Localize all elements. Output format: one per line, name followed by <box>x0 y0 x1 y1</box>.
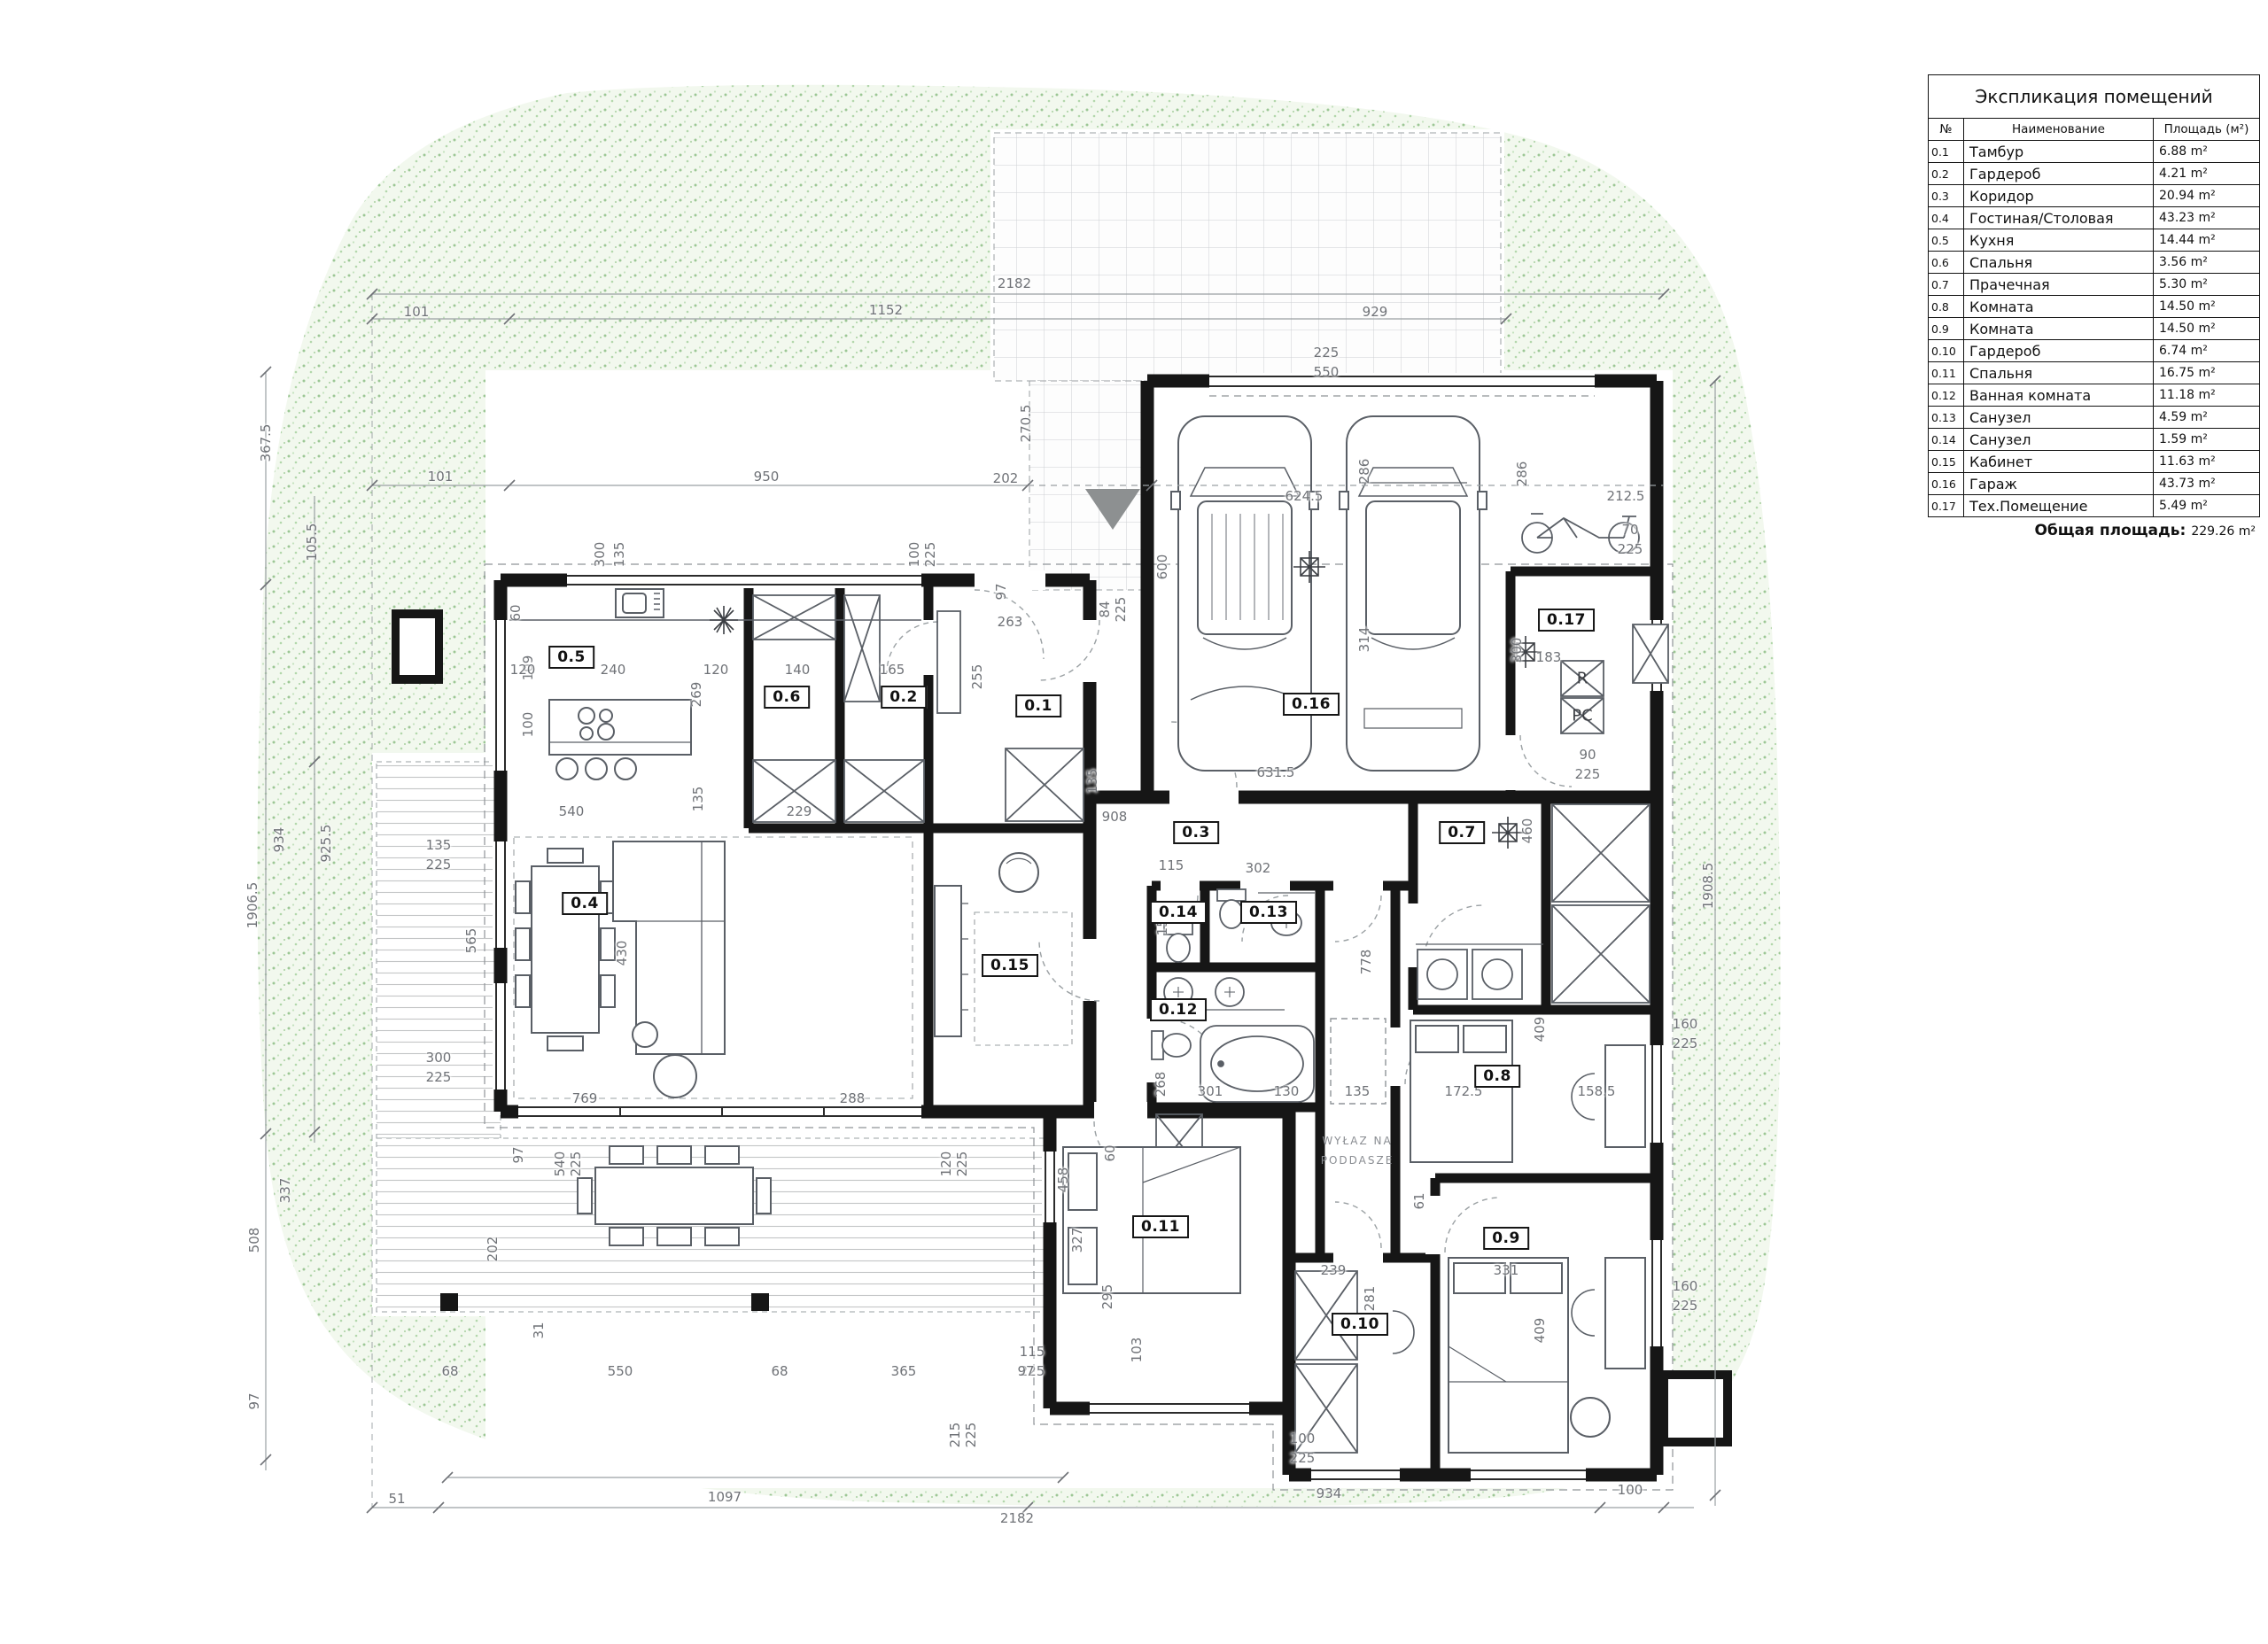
room-schedule-cell: Тамбур <box>1964 141 2154 163</box>
dimension-label: 240 <box>601 662 626 678</box>
room-schedule-cell: Санузел <box>1964 407 2154 429</box>
dimension-label: 263 <box>998 614 1023 630</box>
dimension-label: 295 <box>1099 1284 1115 1310</box>
room-schedule-cell: Тех.Помещение <box>1964 495 2154 517</box>
dimension-label: 160 <box>1673 1016 1698 1032</box>
dimension-label: 225 <box>1314 345 1340 361</box>
dimension-label: 225 <box>1673 1035 1698 1051</box>
room-tag-0.17: 0.17 <box>1538 609 1595 632</box>
room-schedule: Экспликация помещений № Наименование Пло… <box>1928 74 2259 539</box>
room-schedule-cell: 0.11 <box>1929 362 1964 384</box>
dimension-label: 540 <box>552 1152 568 1177</box>
dimension-label: 101 <box>428 469 454 485</box>
car-1 <box>1171 416 1318 771</box>
dimension-label: 565 <box>463 928 479 954</box>
dimension-label: 68 <box>771 1363 788 1379</box>
room-schedule-cell: Гараж <box>1964 473 2154 495</box>
dimension-label: 225 <box>426 857 452 872</box>
dimension-label: 458 <box>1055 1167 1071 1193</box>
dimension-label: 90 <box>1579 747 1596 763</box>
dimension-label: 929 <box>1363 304 1388 320</box>
dimension-label: 769 <box>572 1090 598 1106</box>
room-schedule-cell: 14.50 m² <box>2154 296 2260 318</box>
room-schedule-row: 0.10Гардероб6.74 m² <box>1929 340 2260 362</box>
dimension-label: 225 <box>568 1152 584 1177</box>
room-schedule-cell: 0.6 <box>1929 252 1964 274</box>
dimension-label: 135 <box>611 542 627 568</box>
dimension-label: 624.5 <box>1285 488 1324 504</box>
floor-plan-sheet: 21821011152929225550101950202270.5367.51… <box>0 0 2268 1644</box>
annotation: WYŁAZ NA <box>1322 1135 1392 1147</box>
dimension-label: 337 <box>277 1178 293 1204</box>
room-schedule-cell: 5.30 m² <box>2154 274 2260 296</box>
room-schedule-cell: Кабинет <box>1964 451 2154 473</box>
dimension-label: 135 <box>426 837 452 853</box>
dimension-label: 286 <box>1514 461 1530 487</box>
dimension-label: 135 <box>1345 1083 1371 1099</box>
room-schedule-cell: 1.59 m² <box>2154 429 2260 451</box>
room-schedule-cell: 16.75 m² <box>2154 362 2260 384</box>
room-schedule-cell: 0.9 <box>1929 318 1964 340</box>
room-schedule-row: 0.3Коридор20.94 m² <box>1929 185 2260 207</box>
dimension-label: 269 <box>688 682 704 708</box>
dimension-label: 158.5 <box>1578 1083 1616 1099</box>
dimension-label: 268 <box>1153 1072 1169 1097</box>
dimension-label: 540 <box>559 803 585 819</box>
dimension-label: 2182 <box>1000 1510 1034 1526</box>
dimension-label: 100 <box>906 542 922 568</box>
dimension-label: 70 <box>1621 522 1638 538</box>
room-schedule-cell: Коридор <box>1964 185 2154 207</box>
dimension-label: 950 <box>754 469 780 485</box>
room-schedule-cell: 0.17 <box>1929 495 1964 517</box>
dimension-label: 300 <box>1509 638 1525 663</box>
dimension-label: 120 <box>938 1152 954 1177</box>
dimension-label: 229 <box>787 803 812 819</box>
room-schedule-cell: Гардероб <box>1964 340 2154 362</box>
dimension-label: 202 <box>993 470 1019 486</box>
room-schedule-cell: 0.8 <box>1929 296 1964 318</box>
dimension-label: 255 <box>969 664 985 690</box>
dimension-label: 300 <box>426 1050 452 1066</box>
dimension-label: 61 <box>1411 1192 1427 1209</box>
dimension-label: 550 <box>1314 364 1340 380</box>
room-schedule-cell: 14.44 m² <box>2154 229 2260 252</box>
room-schedule-cell: 3.56 m² <box>2154 252 2260 274</box>
annotation: R <box>1577 670 1588 688</box>
col-header-area: Площадь (м²) <box>2154 119 2260 141</box>
dimension-label: 460 <box>1519 818 1535 844</box>
room-schedule-cell: 0.3 <box>1929 185 1964 207</box>
total-area-value: 229.26 m² <box>2191 524 2256 539</box>
dimension-label: 51 <box>388 1491 405 1507</box>
dimension-label: 97 <box>510 1146 526 1163</box>
dimension-label: 2182 <box>998 275 1031 291</box>
dimension-label: 84 <box>1097 601 1113 617</box>
room-schedule-cell: Спальня <box>1964 362 2154 384</box>
dimension-label: 225 <box>1113 597 1129 623</box>
dimension-label: 288 <box>840 1090 866 1106</box>
room-tag-0.15: 0.15 <box>982 954 1038 977</box>
dimension-label: 60 <box>1102 1144 1118 1161</box>
dimension-label: 135 <box>1084 769 1100 795</box>
room-schedule-cell: Ванная комната <box>1964 384 2154 407</box>
room-schedule-row: 0.5Кухня14.44 m² <box>1929 229 2260 252</box>
room-schedule-row: 0.15Кабинет11.63 m² <box>1929 451 2260 473</box>
room-schedule-row: 0.14Санузел1.59 m² <box>1929 429 2260 451</box>
dimension-label: 135 <box>690 787 706 812</box>
dimension-label: 140 <box>785 662 811 678</box>
dimension-label: 631.5 <box>1257 764 1295 780</box>
room-schedule-cell: Кухня <box>1964 229 2154 252</box>
dimension-label: 1097 <box>708 1489 742 1505</box>
dimension-label: 239 <box>1321 1262 1347 1278</box>
room-tag-0.2: 0.2 <box>881 686 927 709</box>
dimension-label: 225 <box>1575 766 1601 782</box>
dimension-label: 68 <box>441 1363 458 1379</box>
col-header-name: Наименование <box>1964 119 2154 141</box>
room-tag-0.9: 0.9 <box>1483 1227 1529 1250</box>
dimension-label: 225 <box>1618 541 1643 557</box>
room-schedule-cell: 5.49 m² <box>2154 495 2260 517</box>
room-schedule-cell: 0.13 <box>1929 407 1964 429</box>
room-schedule-cell: Комната <box>1964 318 2154 340</box>
dimension-label: 215 <box>947 1423 963 1448</box>
room-schedule-cell: 20.94 m² <box>2154 185 2260 207</box>
dimension-label: 97 <box>993 583 1009 600</box>
room-schedule-title: Экспликация помещений <box>1929 75 2260 119</box>
dimension-label: 600 <box>1154 554 1170 580</box>
dimension-label: 1906.5 <box>245 882 260 929</box>
dimension-label: 550 <box>608 1363 633 1379</box>
room-schedule-cell: 6.74 m² <box>2154 340 2260 362</box>
total-area: Общая площадь: 229.26 m² <box>1928 522 2259 539</box>
dimension-label: 225 <box>922 542 938 568</box>
room-tag-0.12: 0.12 <box>1150 998 1207 1021</box>
dimension-label: 286 <box>1356 459 1372 485</box>
room-schedule-cell: 11.18 m² <box>2154 384 2260 407</box>
room-schedule-cell: 0.7 <box>1929 274 1964 296</box>
room-schedule-row: 0.6Спальня3.56 m² <box>1929 252 2260 274</box>
dimension-label: 302 <box>1246 860 1271 876</box>
room-schedule-row: 0.11Спальня16.75 m² <box>1929 362 2260 384</box>
room-schedule-cell: 43.23 m² <box>2154 207 2260 229</box>
col-header-num: № <box>1929 119 1964 141</box>
room-tag-0.3: 0.3 <box>1173 821 1219 844</box>
dimension-label: 31 <box>531 1322 547 1338</box>
dimension-label: 100 <box>520 712 536 738</box>
room-schedule-table: Экспликация помещений № Наименование Пло… <box>1928 74 2260 517</box>
dimension-label: 300 <box>592 542 608 568</box>
total-area-label: Общая площадь: <box>2034 522 2186 539</box>
dimension-label: 101 <box>404 304 430 320</box>
room-tag-0.6: 0.6 <box>764 686 810 709</box>
room-tag-0.5: 0.5 <box>548 646 594 669</box>
room-schedule-cell: Спальня <box>1964 252 2154 274</box>
room-schedule-cell: 0.10 <box>1929 340 1964 362</box>
room-schedule-cell: 0.12 <box>1929 384 1964 407</box>
dimension-label: 202 <box>485 1237 501 1262</box>
dimension-label: 934 <box>1317 1485 1342 1501</box>
dimension-label: 367.5 <box>258 424 274 462</box>
dimension-label: 327 <box>1069 1228 1085 1253</box>
room-schedule-cell: 43.73 m² <box>2154 473 2260 495</box>
dimension-label: 97 <box>246 1392 262 1409</box>
dimension-label: 130 <box>1274 1083 1300 1099</box>
dimension-label: 225 <box>426 1069 452 1085</box>
dimension-label: 105.5 <box>304 523 320 562</box>
dimension-label: 115 <box>1020 1344 1045 1360</box>
room-schedule-row: 0.8Комната14.50 m² <box>1929 296 2260 318</box>
dimension-label: 314 <box>1356 627 1372 653</box>
dimension-label: 60 <box>508 604 524 621</box>
room-schedule-cell: 0.2 <box>1929 163 1964 185</box>
dimension-label: 225 <box>1673 1298 1698 1314</box>
dimension-label: 165 <box>880 662 905 678</box>
room-schedule-row: 0.16Гараж43.73 m² <box>1929 473 2260 495</box>
dimension-label: 409 <box>1532 1318 1548 1344</box>
room-schedule-header: № Наименование Площадь (м²) <box>1929 119 2260 141</box>
dimension-label: 430 <box>614 941 630 966</box>
room-schedule-cell: 0.5 <box>1929 229 1964 252</box>
dimension-label: 120 <box>510 662 536 678</box>
dimension-label: 934 <box>271 827 287 853</box>
room-tag-0.4: 0.4 <box>562 892 608 915</box>
room-schedule-cell: Комната <box>1964 296 2154 318</box>
annotation: PODDASZE <box>1321 1154 1394 1167</box>
room-schedule-row: 0.17Тех.Помещение5.49 m² <box>1929 495 2260 517</box>
dimension-label: 183 <box>1536 649 1562 665</box>
room-schedule-cell: 4.59 m² <box>2154 407 2260 429</box>
room-schedule-row: 0.12Ванная комната11.18 m² <box>1929 384 2260 407</box>
dimension-label: 160 <box>1673 1278 1698 1294</box>
room-tag-0.10: 0.10 <box>1332 1313 1388 1336</box>
dimension-label: 100 <box>1290 1431 1316 1446</box>
room-schedule-cell: 0.16 <box>1929 473 1964 495</box>
dimension-label: 212.5 <box>1607 488 1645 504</box>
room-tag-0.1: 0.1 <box>1015 694 1061 717</box>
dimension-label: 115 <box>1159 857 1184 873</box>
room-schedule-row: 0.13Санузел4.59 m² <box>1929 407 2260 429</box>
room-tag-0.11: 0.11 <box>1132 1215 1189 1238</box>
room-tag-0.16: 0.16 <box>1283 693 1340 716</box>
dimension-label: 508 <box>246 1228 262 1253</box>
dimension-label: 301 <box>1198 1083 1223 1099</box>
dimension-label: 331 <box>1494 1262 1519 1278</box>
dimension-label: 270.5 <box>1018 405 1034 443</box>
dimension-label: 409 <box>1532 1017 1548 1043</box>
room-tag-0.7: 0.7 <box>1439 821 1485 844</box>
dimension-label: 225 <box>954 1152 970 1177</box>
room-schedule-cell: 0.14 <box>1929 429 1964 451</box>
dimension-label: 1152 <box>869 302 903 318</box>
room-schedule-row: 0.1Тамбур6.88 m² <box>1929 141 2260 163</box>
room-schedule-cell: 11.63 m² <box>2154 451 2260 473</box>
dimension-label: 120 <box>703 662 729 678</box>
room-schedule-cell: 0.15 <box>1929 451 1964 473</box>
dimension-label: 100 <box>1618 1482 1643 1498</box>
room-schedule-cell: Гардероб <box>1964 163 2154 185</box>
room-tag-0.14: 0.14 <box>1150 901 1207 924</box>
room-schedule-cell: 4.21 m² <box>2154 163 2260 185</box>
dimension-label: 1908.5 <box>1700 863 1716 910</box>
room-schedule-cell: 0.1 <box>1929 141 1964 163</box>
room-tag-0.8: 0.8 <box>1474 1065 1520 1088</box>
room-schedule-cell: Прачечная <box>1964 274 2154 296</box>
room-schedule-row: 0.7Прачечная5.30 m² <box>1929 274 2260 296</box>
room-schedule-cell: 6.88 m² <box>2154 141 2260 163</box>
room-schedule-cell: 14.50 m² <box>2154 318 2260 340</box>
room-tag-0.13: 0.13 <box>1240 901 1297 924</box>
dimension-label: 281 <box>1362 1286 1378 1312</box>
dimension-label: 225 <box>1290 1450 1316 1466</box>
room-schedule-row: 0.9Комната14.50 m² <box>1929 318 2260 340</box>
room-schedule-cell: Гостиная/Столовая <box>1964 207 2154 229</box>
annotation: PC <box>1572 707 1592 725</box>
dimension-label: 97 <box>1017 1363 1034 1379</box>
room-schedule-cell: Санузел <box>1964 429 2154 451</box>
room-schedule-cell: 0.4 <box>1929 207 1964 229</box>
dimension-label: 225 <box>963 1423 979 1448</box>
room-schedule-row: 0.2Гардероб4.21 m² <box>1929 163 2260 185</box>
dimension-label: 103 <box>1129 1338 1145 1363</box>
dimension-label: 908 <box>1102 809 1128 825</box>
dimension-label: 778 <box>1358 950 1374 975</box>
dimension-label: 925.5 <box>318 825 334 863</box>
room-schedule-row: 0.4Гостиная/Столовая43.23 m² <box>1929 207 2260 229</box>
dimension-label: 365 <box>891 1363 917 1379</box>
